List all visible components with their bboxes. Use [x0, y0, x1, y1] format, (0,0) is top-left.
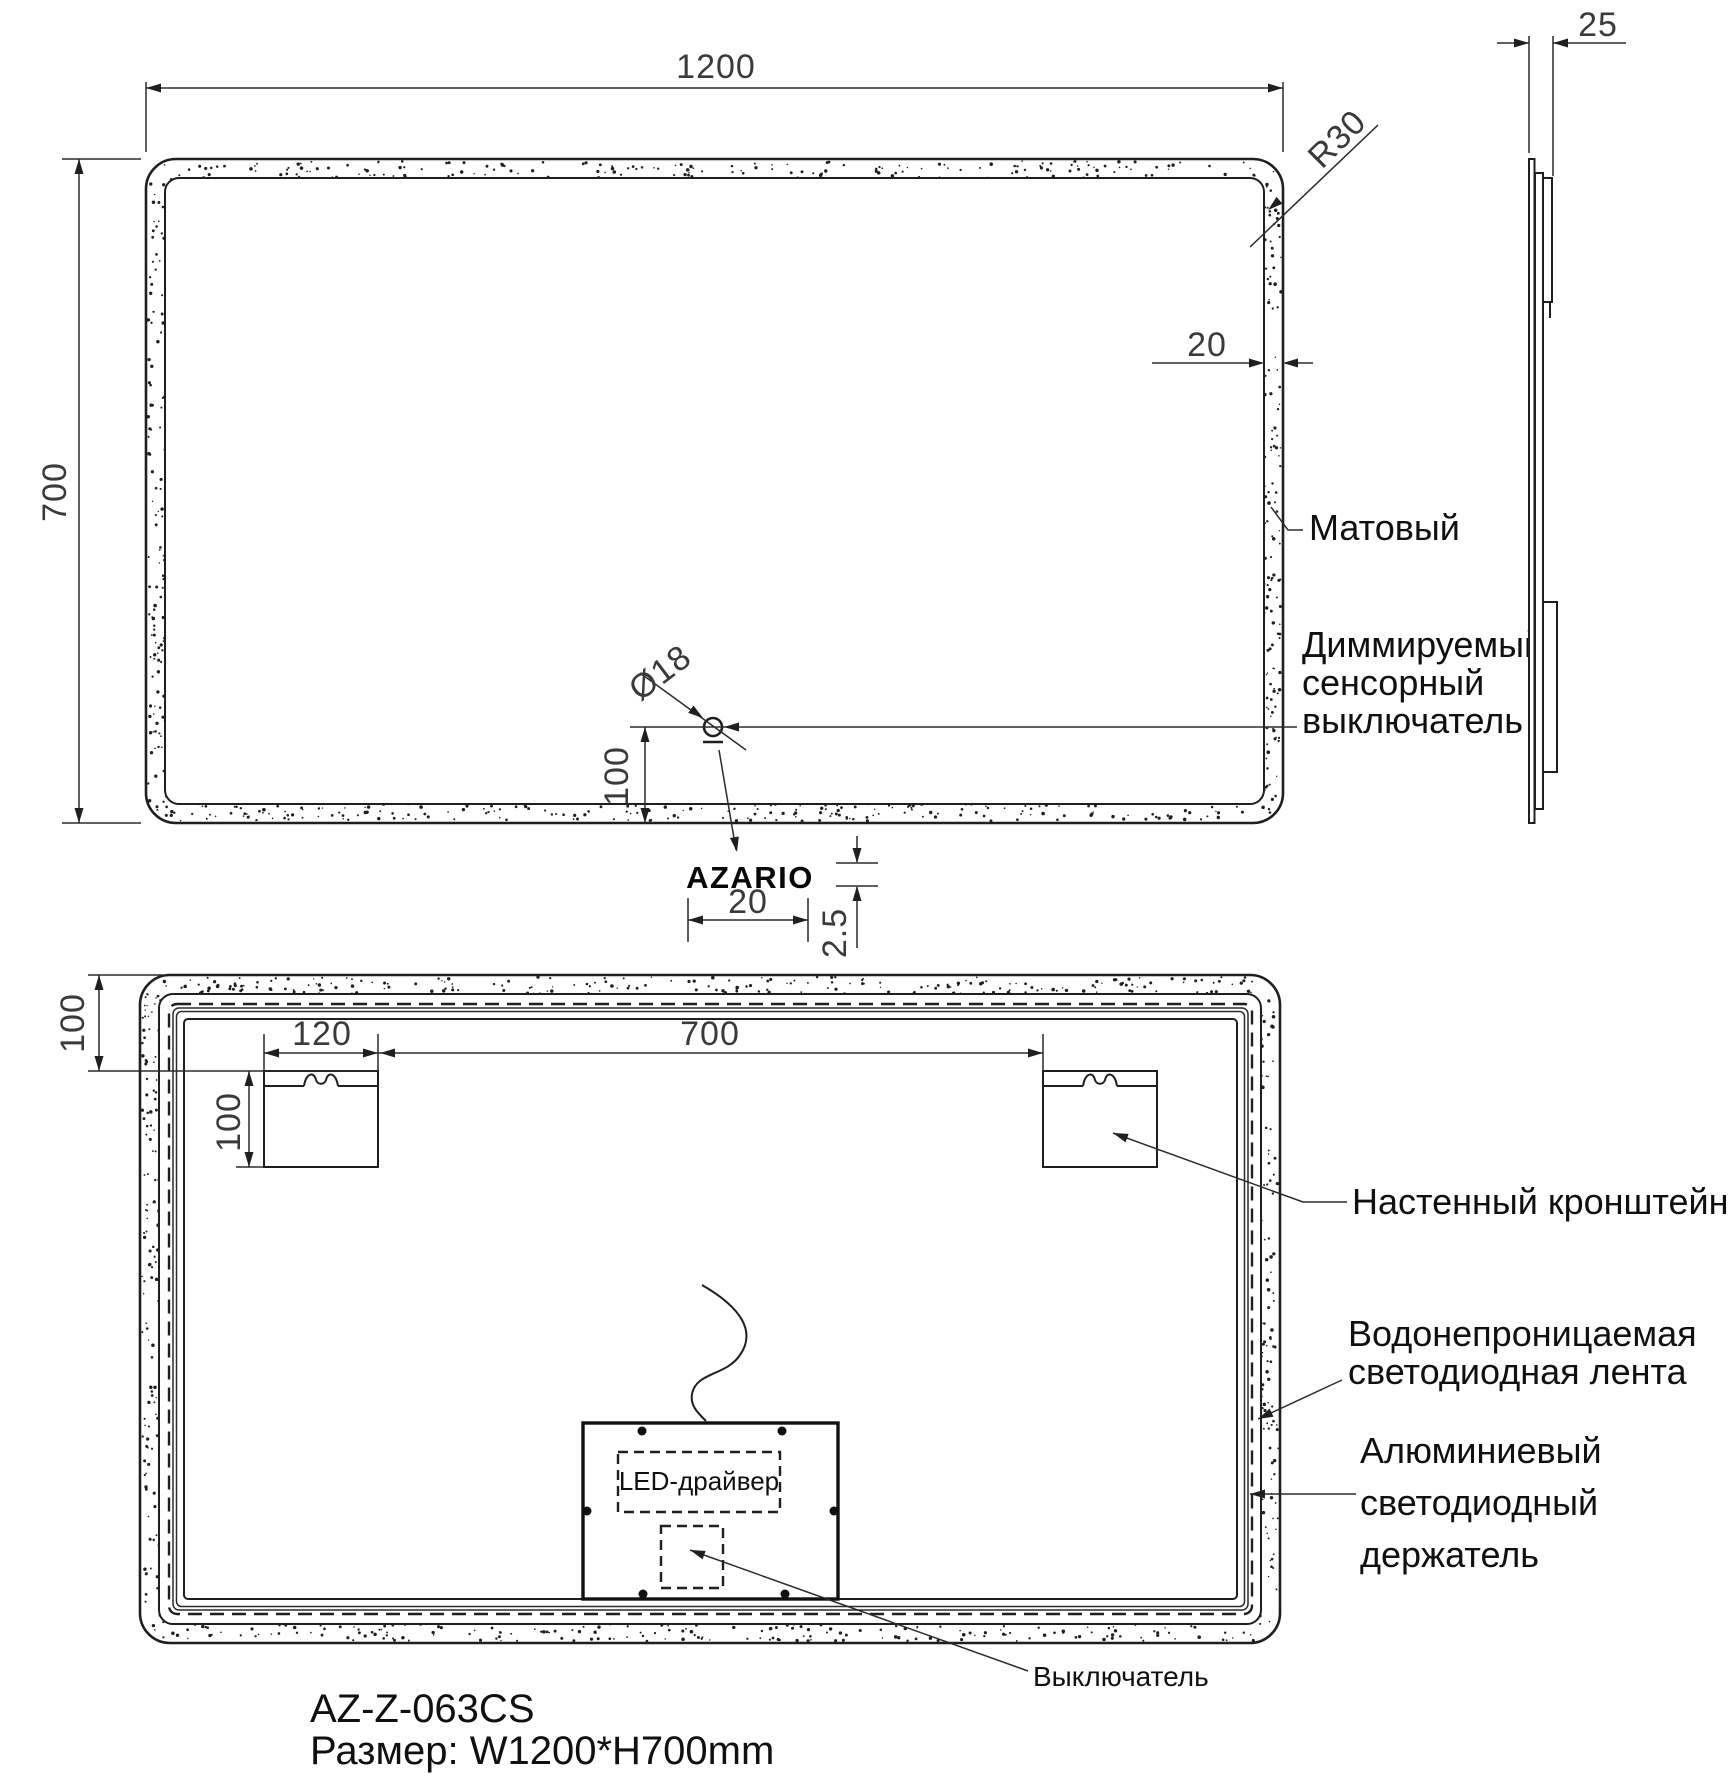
- stipple-dot: [152, 1246, 155, 1249]
- stipple-dot: [155, 253, 158, 256]
- stipple-dot: [147, 1463, 150, 1466]
- touch-switch-label-line3: выключатель: [1302, 700, 1523, 741]
- stipple-dot: [1268, 214, 1271, 217]
- stipple-dot: [353, 1626, 355, 1628]
- stipple-dot: [1276, 1428, 1279, 1431]
- stipple-dot: [1272, 621, 1275, 624]
- stipple-dot: [1111, 1637, 1114, 1640]
- stipple-dot: [1267, 1288, 1271, 1292]
- stipple-dot: [1092, 811, 1093, 812]
- stipple-dot: [687, 980, 690, 983]
- stipple-dot: [549, 977, 551, 979]
- stipple-dot: [160, 488, 162, 490]
- stipple-dot: [330, 983, 332, 985]
- stipple-dot: [754, 166, 757, 169]
- stipple-dot: [578, 1630, 581, 1633]
- drawing-canvas: 1200 700 R30 20 Матовый Ø18: [0, 0, 1733, 1779]
- stipple-dot: [820, 172, 823, 175]
- stipple-dot: [150, 1568, 152, 1570]
- stipple-dot: [152, 1624, 155, 1627]
- stipple-dot: [1267, 1378, 1270, 1381]
- stipple-dot: [800, 1625, 803, 1628]
- stipple-dot: [1268, 369, 1270, 371]
- stipple-dot: [1272, 1292, 1274, 1294]
- stipple-dot: [693, 167, 695, 169]
- stipple-dot: [1272, 1252, 1275, 1255]
- matte-label: Матовый: [1309, 507, 1460, 548]
- stipple-dot: [451, 173, 454, 176]
- stipple-dot: [771, 168, 773, 170]
- stipple-dot: [947, 984, 949, 986]
- stipple-dot: [1108, 1627, 1111, 1630]
- mirror-technical-drawing: 1200 700 R30 20 Матовый Ø18: [0, 0, 1733, 1779]
- stipple-dot: [983, 1635, 985, 1637]
- stipple-dot: [1183, 818, 1187, 822]
- stipple-dot: [155, 642, 157, 644]
- stipple-dot: [146, 1327, 149, 1330]
- stipple-dot: [157, 646, 160, 649]
- stipple-dot: [155, 997, 157, 999]
- stipple-dot: [256, 981, 259, 984]
- stipple-dot: [589, 985, 591, 987]
- stipple-dot: [668, 1629, 671, 1632]
- stipple-dot: [1131, 984, 1133, 986]
- stipple-dot: [1266, 186, 1268, 188]
- stipple-dot: [147, 1173, 149, 1175]
- stipple-dot: [1267, 491, 1269, 493]
- stipple-dot: [146, 1005, 147, 1006]
- stipple-dot: [1271, 535, 1273, 537]
- stipple-dot: [360, 980, 362, 982]
- stipple-dot: [1274, 795, 1277, 798]
- stipple-dot: [695, 988, 698, 991]
- stipple-dot: [536, 975, 539, 978]
- stipple-dot: [156, 1079, 158, 1081]
- stipple-dot: [161, 232, 163, 234]
- stipple-dot: [1114, 1629, 1117, 1632]
- stipple-dot: [1278, 455, 1280, 457]
- stipple-dot: [681, 1638, 685, 1642]
- stipple-dot: [149, 1249, 152, 1252]
- stipple-dot: [838, 814, 841, 817]
- stipple-dot: [1130, 169, 1132, 171]
- stipple-dot: [206, 818, 208, 820]
- stipple-dot: [795, 809, 797, 811]
- stipple-dot: [921, 168, 923, 170]
- stipple-dot: [1024, 805, 1026, 807]
- stipple-dot: [150, 322, 152, 324]
- stipple-dot: [150, 751, 153, 754]
- stipple-dot: [1183, 977, 1186, 980]
- stipple-dot: [154, 706, 155, 707]
- stipple-dot: [664, 1638, 665, 1639]
- stipple-dot: [148, 1028, 150, 1030]
- stipple-dot: [147, 1401, 150, 1404]
- stipple-dot: [635, 168, 637, 170]
- stipple-dot: [1269, 276, 1271, 278]
- stipple-dot: [1271, 577, 1274, 580]
- stipple-dot: [1271, 247, 1274, 250]
- stipple-dot: [1087, 805, 1090, 808]
- stipple-dot: [1091, 1631, 1093, 1633]
- stipple-dot: [749, 819, 752, 822]
- stipple-dot: [142, 1017, 144, 1019]
- stipple-dot: [1053, 1631, 1056, 1634]
- stipple-dot: [670, 980, 672, 982]
- led-strip-label: Водонепроницаемая светодиодная лента: [1348, 1313, 1697, 1392]
- stipple-dot: [1270, 556, 1272, 558]
- stipple-dot: [1269, 784, 1271, 786]
- stipple-dot: [357, 1628, 359, 1630]
- stipple-dot: [1127, 977, 1130, 980]
- stipple-dot: [230, 812, 233, 815]
- stipple-dot: [143, 1280, 145, 1282]
- stipple-dot: [1267, 301, 1270, 304]
- stipple-dot: [211, 1634, 213, 1636]
- stipple-dot: [318, 983, 321, 986]
- stipple-dot: [1250, 1634, 1251, 1635]
- stipple-dot: [573, 818, 575, 820]
- stipple-dot: [501, 984, 503, 986]
- stipple-dot: [599, 990, 601, 992]
- stipple-dot: [527, 807, 530, 810]
- stipple-dot: [323, 1628, 326, 1631]
- stipple-dot: [142, 1029, 145, 1032]
- stipple-dot: [1268, 299, 1270, 301]
- stipple-dot: [1015, 170, 1018, 173]
- stipple-dot: [759, 1637, 761, 1639]
- stipple-dot: [646, 1640, 649, 1643]
- stipple-dot: [677, 816, 679, 818]
- stipple-dot: [1062, 987, 1064, 989]
- stipple-dot: [150, 1390, 153, 1393]
- logo-height-value: 2.5: [816, 908, 854, 958]
- screw-dot: [778, 1427, 787, 1436]
- stipple-dot: [1279, 605, 1282, 608]
- stipple-dot: [1232, 1637, 1233, 1638]
- switch-label: Выключатель: [1033, 1661, 1209, 1692]
- stipple-dot: [849, 818, 851, 820]
- stipple-dot: [155, 514, 157, 516]
- stipple-dot: [969, 1632, 972, 1635]
- stipple-dot: [766, 980, 769, 983]
- stipple-dot: [859, 1629, 862, 1632]
- stipple-dot: [1273, 688, 1275, 690]
- stipple-dot: [1040, 166, 1043, 169]
- stipple-dot: [613, 818, 615, 820]
- stipple-dot: [148, 1263, 151, 1266]
- stipple-dot: [1070, 164, 1072, 166]
- stipple-dot: [318, 816, 320, 818]
- stipple-dot: [1003, 1625, 1005, 1627]
- stipple-dot: [160, 478, 163, 481]
- stipple-dot: [1270, 1025, 1274, 1029]
- stipple-dot: [1242, 979, 1245, 982]
- stipple-dot: [149, 384, 152, 387]
- stipple-dot: [1277, 212, 1280, 215]
- stipple-dot: [1262, 1511, 1266, 1515]
- stipple-dot: [701, 170, 703, 172]
- stipple-dot: [149, 1138, 152, 1141]
- stipple-dot: [1269, 1447, 1272, 1450]
- stipple-dot: [371, 982, 373, 984]
- stipple-dot: [754, 163, 756, 165]
- stipple-dot: [642, 1635, 644, 1637]
- stipple-dot: [484, 174, 486, 176]
- stipple-dot: [474, 1630, 476, 1632]
- stipple-dot: [1210, 990, 1213, 993]
- stipple-dot: [204, 167, 207, 170]
- stipple-dot: [892, 807, 894, 809]
- stipple-dot: [150, 1124, 152, 1126]
- stipple-dot: [460, 170, 463, 173]
- stipple-dot: [985, 980, 987, 982]
- stipple-dot: [809, 1635, 812, 1638]
- stipple-dot: [1009, 983, 1011, 985]
- stipple-dot: [800, 991, 802, 993]
- stipple-dot: [1155, 990, 1157, 992]
- stipple-dot: [911, 809, 913, 811]
- led-driver-box: LED-драйвер: [583, 1423, 839, 1599]
- stipple-dot: [585, 161, 588, 164]
- stipple-dot: [507, 980, 510, 983]
- stipple-dot: [649, 819, 652, 822]
- stipple-dot: [1266, 697, 1269, 700]
- stipple-dot: [880, 1628, 883, 1631]
- stipple-dot: [910, 807, 912, 809]
- stipple-dot: [830, 976, 833, 979]
- stipple-dot: [772, 1637, 775, 1640]
- stipple-dot: [1269, 392, 1272, 395]
- stipple-dot: [866, 816, 869, 819]
- stipple-dot: [316, 167, 319, 170]
- stipple-dot: [1276, 1424, 1278, 1426]
- stipple-dot: [408, 1640, 410, 1642]
- stipple-dot: [145, 1572, 148, 1575]
- stipple-dot: [158, 220, 160, 222]
- stipple-dot: [144, 1474, 146, 1476]
- rear-edge-offset-value: 100: [54, 993, 92, 1053]
- stipple-dot: [159, 549, 161, 551]
- stipple-dot: [421, 168, 423, 170]
- front-width-value: 1200: [676, 48, 756, 86]
- stipple-dot: [827, 987, 829, 989]
- stipple-dot: [1183, 982, 1185, 984]
- stipple-dot: [1243, 161, 1245, 163]
- stipple-dot: [1278, 633, 1281, 636]
- stipple-dot: [153, 604, 157, 608]
- stipple-dot: [861, 979, 863, 981]
- stipple-dot: [234, 806, 236, 808]
- arrowhead: [146, 84, 161, 93]
- stipple-dot: [1265, 1370, 1269, 1374]
- stipple-dot: [636, 987, 639, 990]
- stipple-dot: [1139, 977, 1141, 979]
- stipple-dot: [322, 807, 323, 808]
- stipple-dot: [1266, 767, 1269, 770]
- front-band-width-value: 20: [1187, 326, 1227, 364]
- stipple-dot: [164, 164, 166, 166]
- stipple-dot: [423, 813, 426, 816]
- stipple-dot: [769, 1627, 773, 1631]
- stipple-dot: [151, 1011, 153, 1013]
- stipple-dot: [500, 1640, 501, 1641]
- stipple-dot: [300, 163, 302, 165]
- left-wall-bracket: [264, 1071, 378, 1167]
- stipple-dot: [1265, 757, 1267, 759]
- stipple-dot: [1252, 1639, 1255, 1642]
- stipple-dot: [270, 980, 272, 982]
- stipple-dot: [1096, 991, 1098, 993]
- stipple-dot: [258, 810, 261, 813]
- stipple-dot: [927, 985, 929, 987]
- stipple-dot: [145, 1601, 147, 1603]
- stipple-dot: [255, 819, 257, 821]
- stipple-dot: [987, 807, 989, 809]
- stipple-dot: [494, 810, 496, 812]
- stipple-dot: [1252, 174, 1255, 177]
- stipple-dot: [1273, 1553, 1275, 1555]
- stipple-dot: [141, 1276, 143, 1278]
- stipple-dot: [150, 1276, 153, 1279]
- stipple-dot: [154, 775, 157, 778]
- stipple-dot: [1144, 818, 1147, 821]
- stipple-dot: [1280, 447, 1281, 448]
- stipple-dot: [153, 1505, 156, 1508]
- stipple-dot: [555, 813, 557, 815]
- stipple-dot: [675, 165, 677, 167]
- stipple-dot: [1030, 814, 1031, 815]
- stipple-dot: [826, 1631, 828, 1633]
- stipple-dot: [812, 172, 814, 174]
- stipple-dot: [1269, 811, 1272, 814]
- stipple-dot: [641, 166, 644, 169]
- stipple-dot: [664, 805, 667, 808]
- stipple-dot: [143, 1568, 146, 1571]
- stipple-dot: [499, 1631, 501, 1633]
- stipple-dot: [1270, 1565, 1273, 1568]
- stipple-dot: [793, 813, 795, 815]
- stipple-dot: [1143, 985, 1146, 988]
- stipple-dot: [872, 815, 874, 817]
- stipple-dot: [371, 1631, 374, 1634]
- stipple-dot: [1217, 816, 1220, 819]
- stipple-dot: [1164, 1627, 1166, 1629]
- stipple-dot: [807, 1639, 810, 1642]
- stipple-dot: [146, 1437, 149, 1440]
- stipple-dot: [176, 1634, 179, 1637]
- stipple-dot: [1274, 501, 1276, 503]
- stipple-dot: [1279, 623, 1281, 625]
- stipple-dot: [1016, 818, 1019, 821]
- stipple-dot: [1117, 160, 1120, 163]
- stipple-dot: [1266, 1075, 1268, 1077]
- stipple-dot: [1156, 1634, 1159, 1637]
- stipple-dot: [582, 1626, 584, 1628]
- stipple-dot: [155, 1413, 157, 1415]
- stipple-dot: [155, 487, 158, 490]
- stipple-dot: [152, 229, 155, 232]
- stipple-dot: [162, 801, 164, 803]
- stipple-dot: [1005, 1634, 1007, 1636]
- stipple-dot: [950, 986, 952, 988]
- stipple-dot: [444, 981, 446, 983]
- stipple-dot: [1092, 984, 1095, 987]
- stipple-dot: [162, 206, 165, 209]
- stipple-dot: [153, 731, 155, 733]
- stipple-dot: [1102, 1638, 1106, 1642]
- stipple-dot: [1251, 981, 1253, 983]
- stipple-dot: [156, 809, 158, 811]
- stipple-dot: [287, 167, 289, 169]
- stipple-dot: [820, 807, 823, 810]
- stipple-dot: [157, 746, 159, 748]
- stipple-dot: [148, 1339, 149, 1340]
- stipple-dot: [627, 819, 629, 821]
- arrowhead: [95, 1056, 104, 1071]
- stipple-dot: [393, 1639, 396, 1642]
- stipple-dot: [151, 675, 153, 677]
- stipple-dot: [1119, 167, 1121, 169]
- stipple-dot: [1211, 806, 1214, 809]
- stipple-dot: [1277, 408, 1279, 410]
- stipple-dot: [207, 977, 209, 979]
- stipple-dot: [1194, 979, 1197, 982]
- stipple-dot: [1266, 649, 1269, 652]
- stipple-dot: [916, 1626, 918, 1628]
- stipple-dot: [1272, 573, 1275, 576]
- stipple-dot: [795, 816, 797, 818]
- stipple-dot: [881, 167, 883, 169]
- stipple-dot: [894, 1635, 898, 1639]
- stipple-dot: [775, 819, 777, 821]
- stipple-dot: [610, 984, 614, 988]
- stipple-dot: [440, 1626, 443, 1629]
- stipple-dot: [178, 174, 180, 176]
- led-holder-label-line3: держатель: [1360, 1534, 1539, 1575]
- stipple-dot: [542, 1630, 546, 1634]
- stipple-dot: [934, 987, 937, 990]
- stipple-dot: [1268, 1237, 1270, 1239]
- stipple-dot: [173, 812, 175, 814]
- stipple-dot: [816, 976, 818, 978]
- stipple-dot: [229, 985, 232, 988]
- stipple-dot: [153, 1202, 155, 1204]
- stipple-dot: [1269, 282, 1272, 285]
- stipple-dot: [1095, 169, 1098, 172]
- stipple-dot: [636, 812, 638, 814]
- stipple-dot: [687, 174, 690, 177]
- stipple-dot: [1279, 404, 1281, 406]
- stipple-dot: [801, 820, 804, 823]
- stipple-dot: [979, 982, 982, 985]
- stipple-dot: [143, 1036, 146, 1039]
- stipple-dot: [297, 162, 300, 165]
- stipple-dot: [667, 1625, 669, 1627]
- stipple-dot: [313, 978, 314, 979]
- stipple-dot: [149, 276, 151, 278]
- stipple-dot: [1131, 990, 1134, 993]
- stipple-dot: [1278, 688, 1282, 692]
- stipple-dot: [378, 1629, 380, 1631]
- stipple-dot: [754, 805, 756, 807]
- stipple-dot: [160, 661, 162, 663]
- stipple-dot: [365, 169, 369, 173]
- stipple-dot: [1056, 990, 1058, 992]
- stipple-dot: [803, 1635, 805, 1637]
- stipple-dot: [155, 1056, 157, 1058]
- stipple-dot: [1279, 290, 1282, 293]
